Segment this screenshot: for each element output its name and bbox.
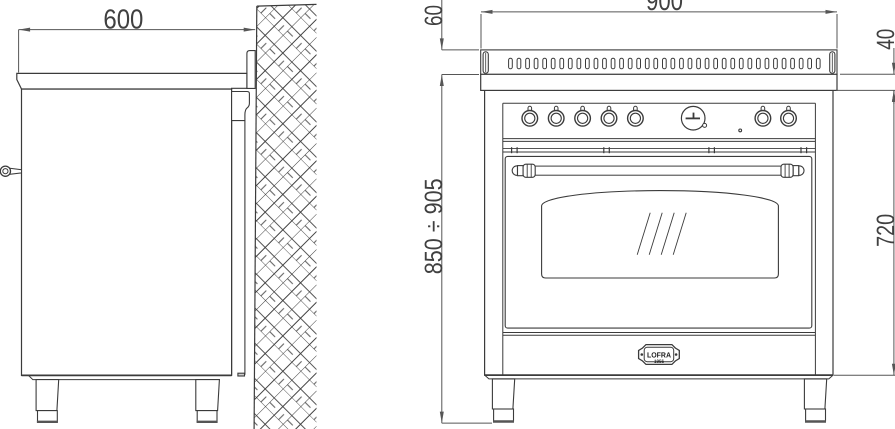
svg-text:600: 600 — [103, 4, 143, 35]
svg-text:60: 60 — [420, 5, 448, 26]
svg-text:LOFRA: LOFRA — [647, 350, 672, 359]
svg-text:40: 40 — [872, 29, 895, 50]
svg-text:850 ÷ 905: 850 ÷ 905 — [420, 178, 448, 274]
svg-text:1956: 1956 — [654, 359, 664, 365]
svg-text:720: 720 — [872, 214, 895, 247]
svg-text:900: 900 — [646, 0, 683, 16]
